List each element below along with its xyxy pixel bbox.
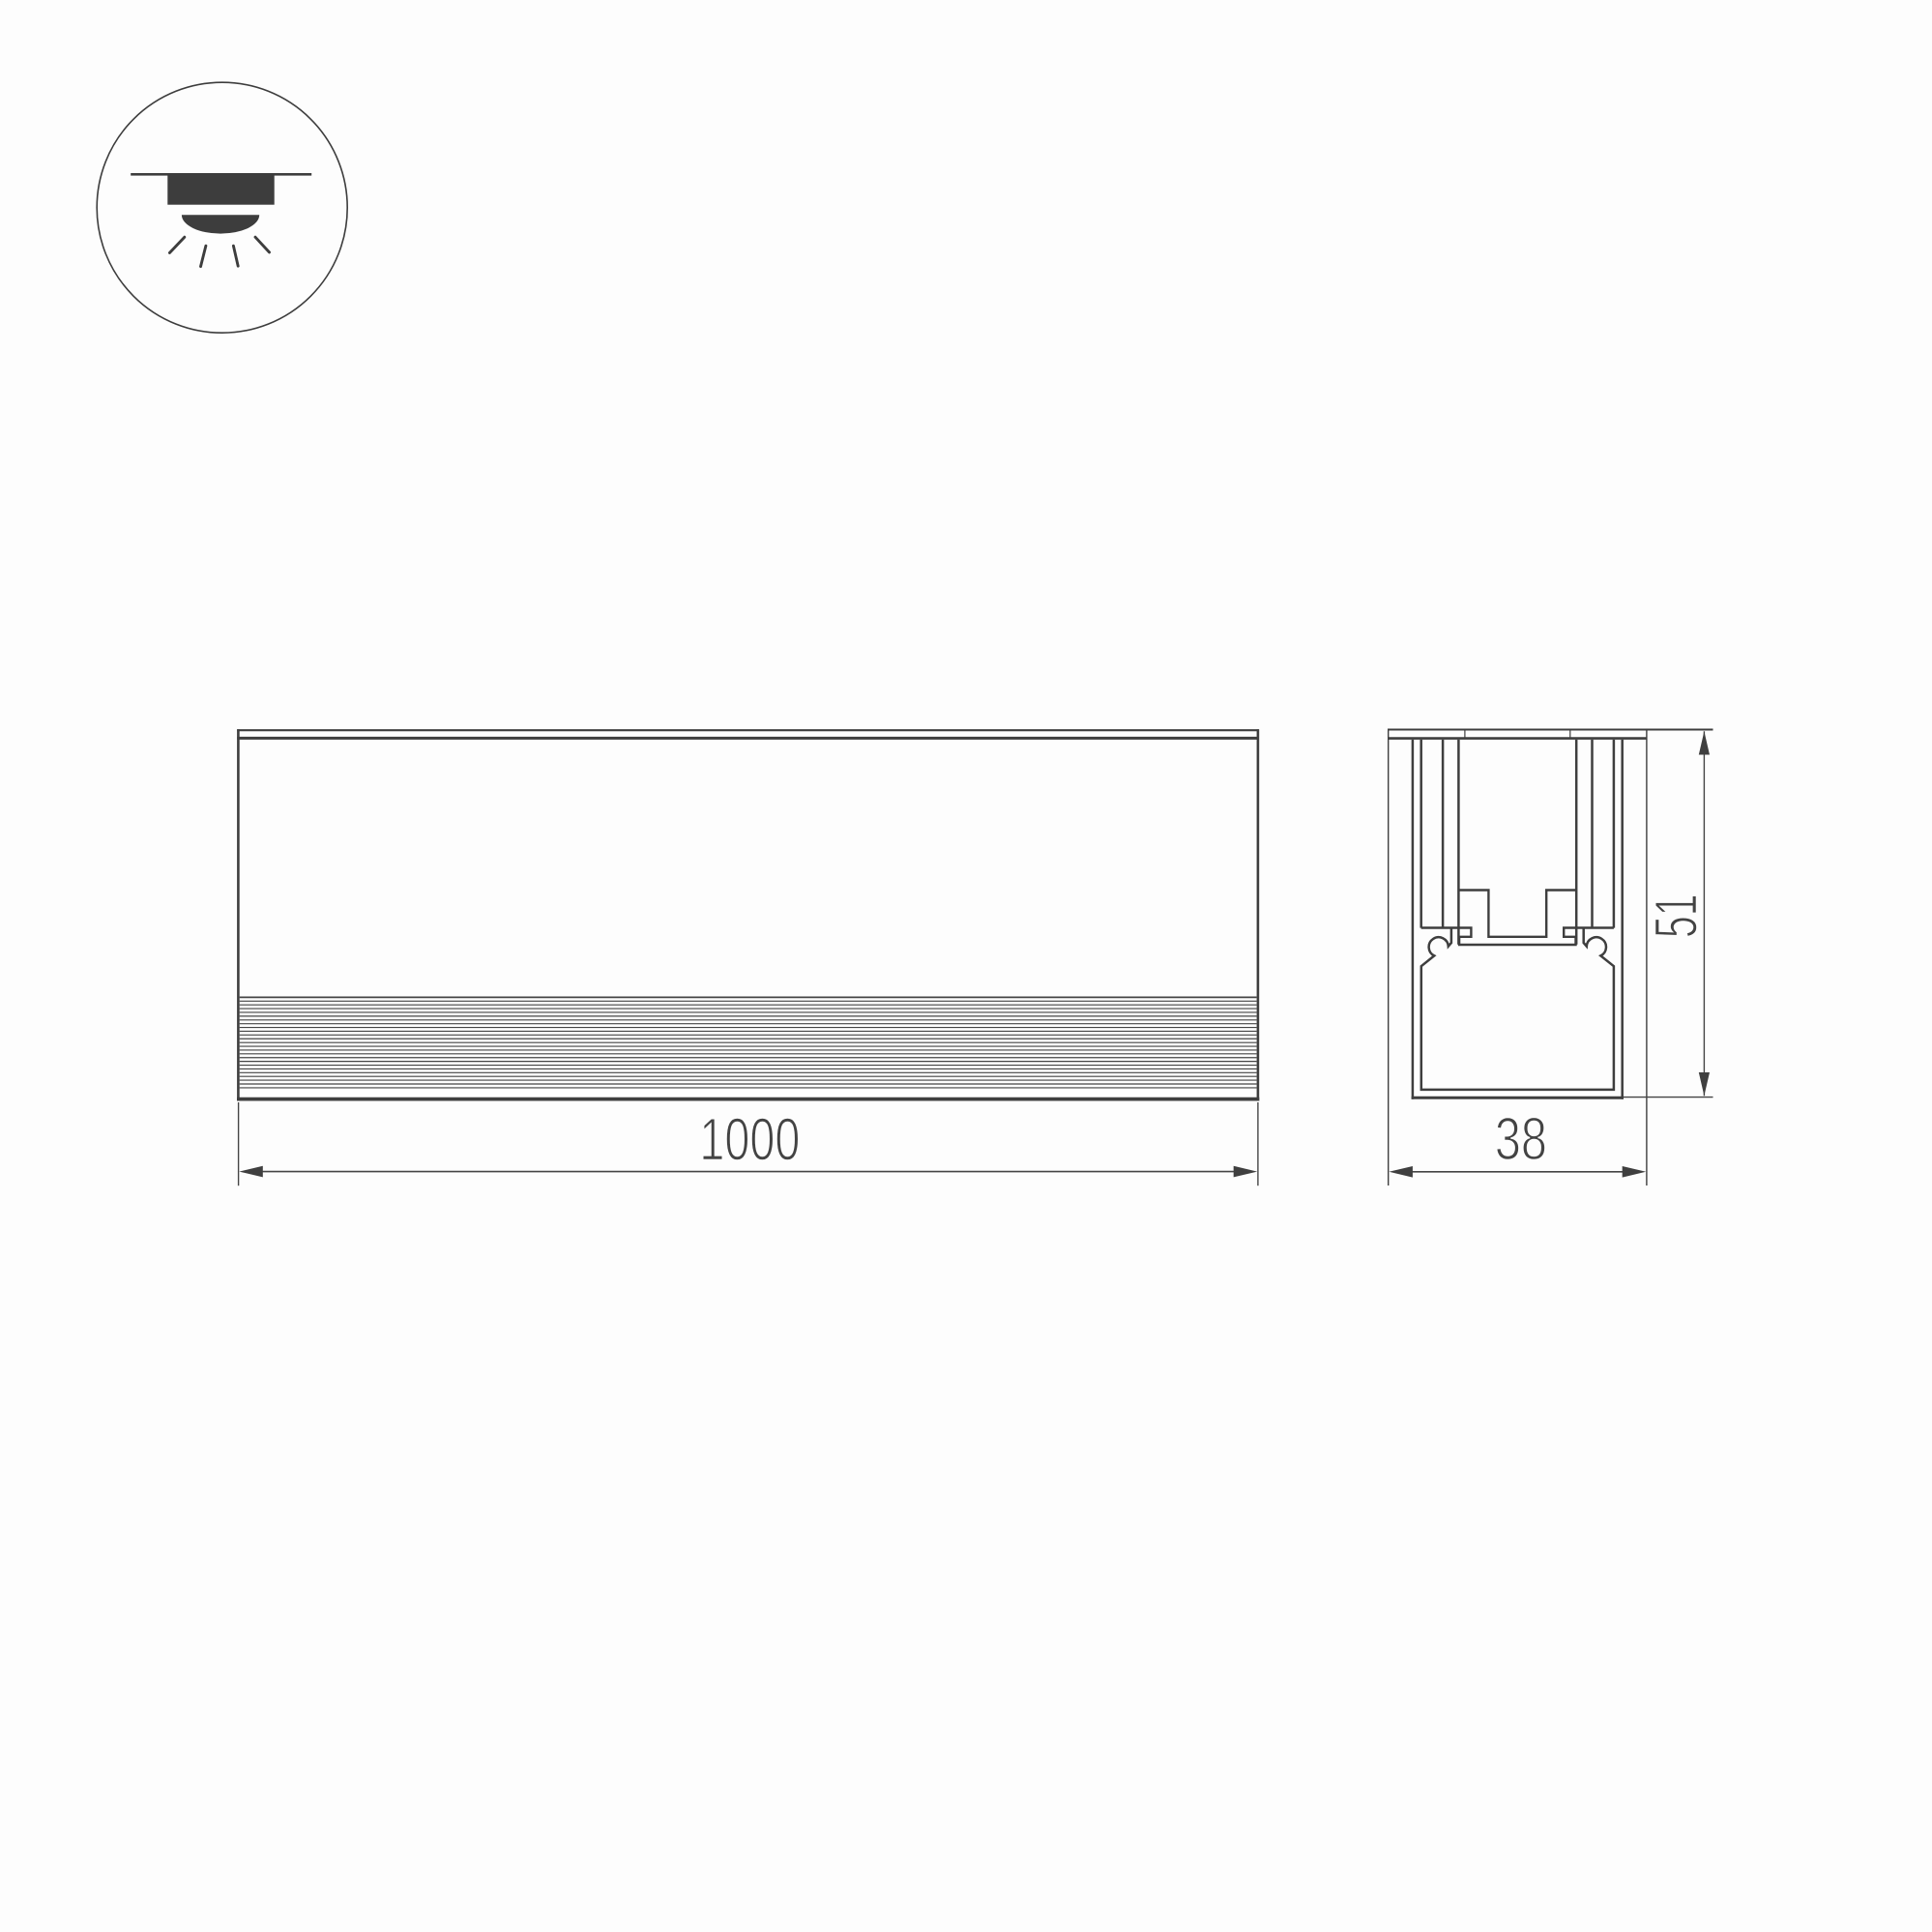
svg-text:1000: 1000 bbox=[699, 1107, 800, 1174]
svg-text:38: 38 bbox=[1495, 1106, 1547, 1173]
svg-text:51: 51 bbox=[1644, 893, 1711, 938]
